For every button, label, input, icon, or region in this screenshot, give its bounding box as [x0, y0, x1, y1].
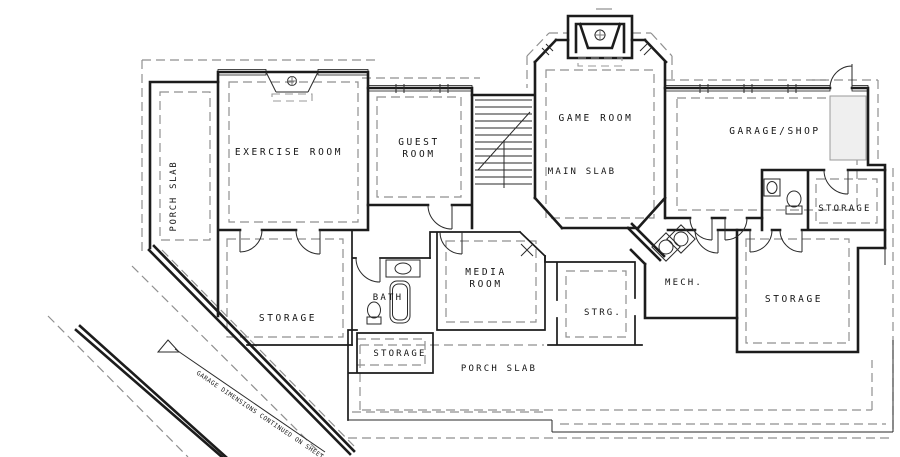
strg-walls: [545, 256, 642, 345]
mech-water-heater-2-icon: [674, 232, 688, 246]
door-exercise-storage-1: [240, 230, 262, 252]
strg-inner-dashed: [566, 271, 626, 337]
storage-lr-inner-dashed: [746, 239, 849, 343]
mech-water-heater-1-icon: [659, 240, 673, 254]
label-game-room: GAME ROOM: [559, 113, 634, 124]
tiny-note-marks: [596, 9, 826, 80]
exercise-walls: [218, 72, 368, 316]
bath-walls: [352, 230, 430, 345]
mech-walls: [631, 230, 737, 318]
overhang-game-bay: [527, 33, 672, 88]
label-strg: STRG.: [584, 308, 622, 318]
right-block-walls: [737, 170, 885, 352]
room-labels: PORCH SLAB EXERCISE ROOM GUEST ROOM GAME…: [169, 113, 872, 457]
door-storage-ur: [824, 170, 848, 194]
label-main-slab: MAIN SLAB: [548, 167, 617, 177]
door-media: [440, 232, 462, 254]
bath-toilet-bowl-icon: [368, 302, 381, 318]
label-garage-shop: GARAGE/SHOP: [729, 126, 821, 137]
slab-bottom-dashed: [348, 412, 890, 438]
label-media-room-2: ROOM: [469, 279, 502, 290]
storage-bottom-center-walls: [348, 330, 433, 420]
game-inner-dashed: [546, 70, 654, 218]
toiletroom-sink-icon: [767, 182, 777, 194]
toiletroom-toilet-bowl-icon: [787, 191, 801, 207]
walls: [76, 16, 893, 457]
game-room-bay: [535, 40, 666, 228]
door-storage-lr: [750, 230, 772, 252]
label-exercise-room: EXERCISE ROOM: [235, 147, 343, 158]
label-storage-lower-right: STORAGE: [765, 294, 823, 305]
hall-diagonal-wall: [628, 224, 664, 260]
door-mech: [695, 230, 718, 253]
exercise-hearth-dashed: [272, 94, 312, 101]
porch-slab-bottom-edge: [348, 248, 893, 432]
door-guest: [428, 205, 452, 229]
door-bath: [356, 258, 380, 282]
diagonal-wall-lower: [76, 326, 226, 457]
game-fireplace-cross: [594, 29, 606, 41]
door-garage-exterior: [830, 64, 852, 88]
door-toilet-room: [780, 230, 802, 252]
porch-bottom-inner-dashed: [360, 345, 872, 410]
label-storage-bottom-center: STORAGE: [373, 349, 426, 359]
label-bath: BATH: [373, 293, 403, 303]
cased-opening-x: [521, 244, 533, 256]
door-exercise-storage-2: [296, 230, 320, 254]
floor-plan-canvas: PORCH SLAB EXERCISE ROOM GUEST ROOM GAME…: [0, 0, 900, 457]
label-guest-room-2: ROOM: [402, 149, 435, 160]
garage-stair-landing: [830, 96, 866, 160]
bath-sink-icon: [395, 263, 411, 274]
diagonal-dashed-lines: [48, 250, 354, 457]
staircase: [475, 100, 532, 188]
label-media-room-1: MEDIA: [465, 267, 507, 278]
label-storage-upper-right: STORAGE: [818, 204, 871, 214]
porch-left-inner-dashed: [160, 92, 210, 240]
label-garage-note: GARAGE DIMENSIONS CONTINUED ON SHEET: [195, 370, 325, 457]
label-porch-slab-bottom: PORCH SLAB: [461, 364, 537, 374]
label-guest-room-1: GUEST: [398, 137, 440, 148]
label-storage-left: STORAGE: [259, 313, 317, 324]
floor-plan-page: PORCH SLAB EXERCISE ROOM GUEST ROOM GAME…: [0, 0, 900, 457]
storage-ur-inner-dashed: [816, 179, 877, 223]
label-mech: MECH.: [665, 278, 703, 288]
label-porch-slab-left: PORCH SLAB: [169, 161, 179, 232]
diagonal-wall-upper: [149, 246, 354, 454]
annotation-flag-icon: [158, 340, 179, 352]
